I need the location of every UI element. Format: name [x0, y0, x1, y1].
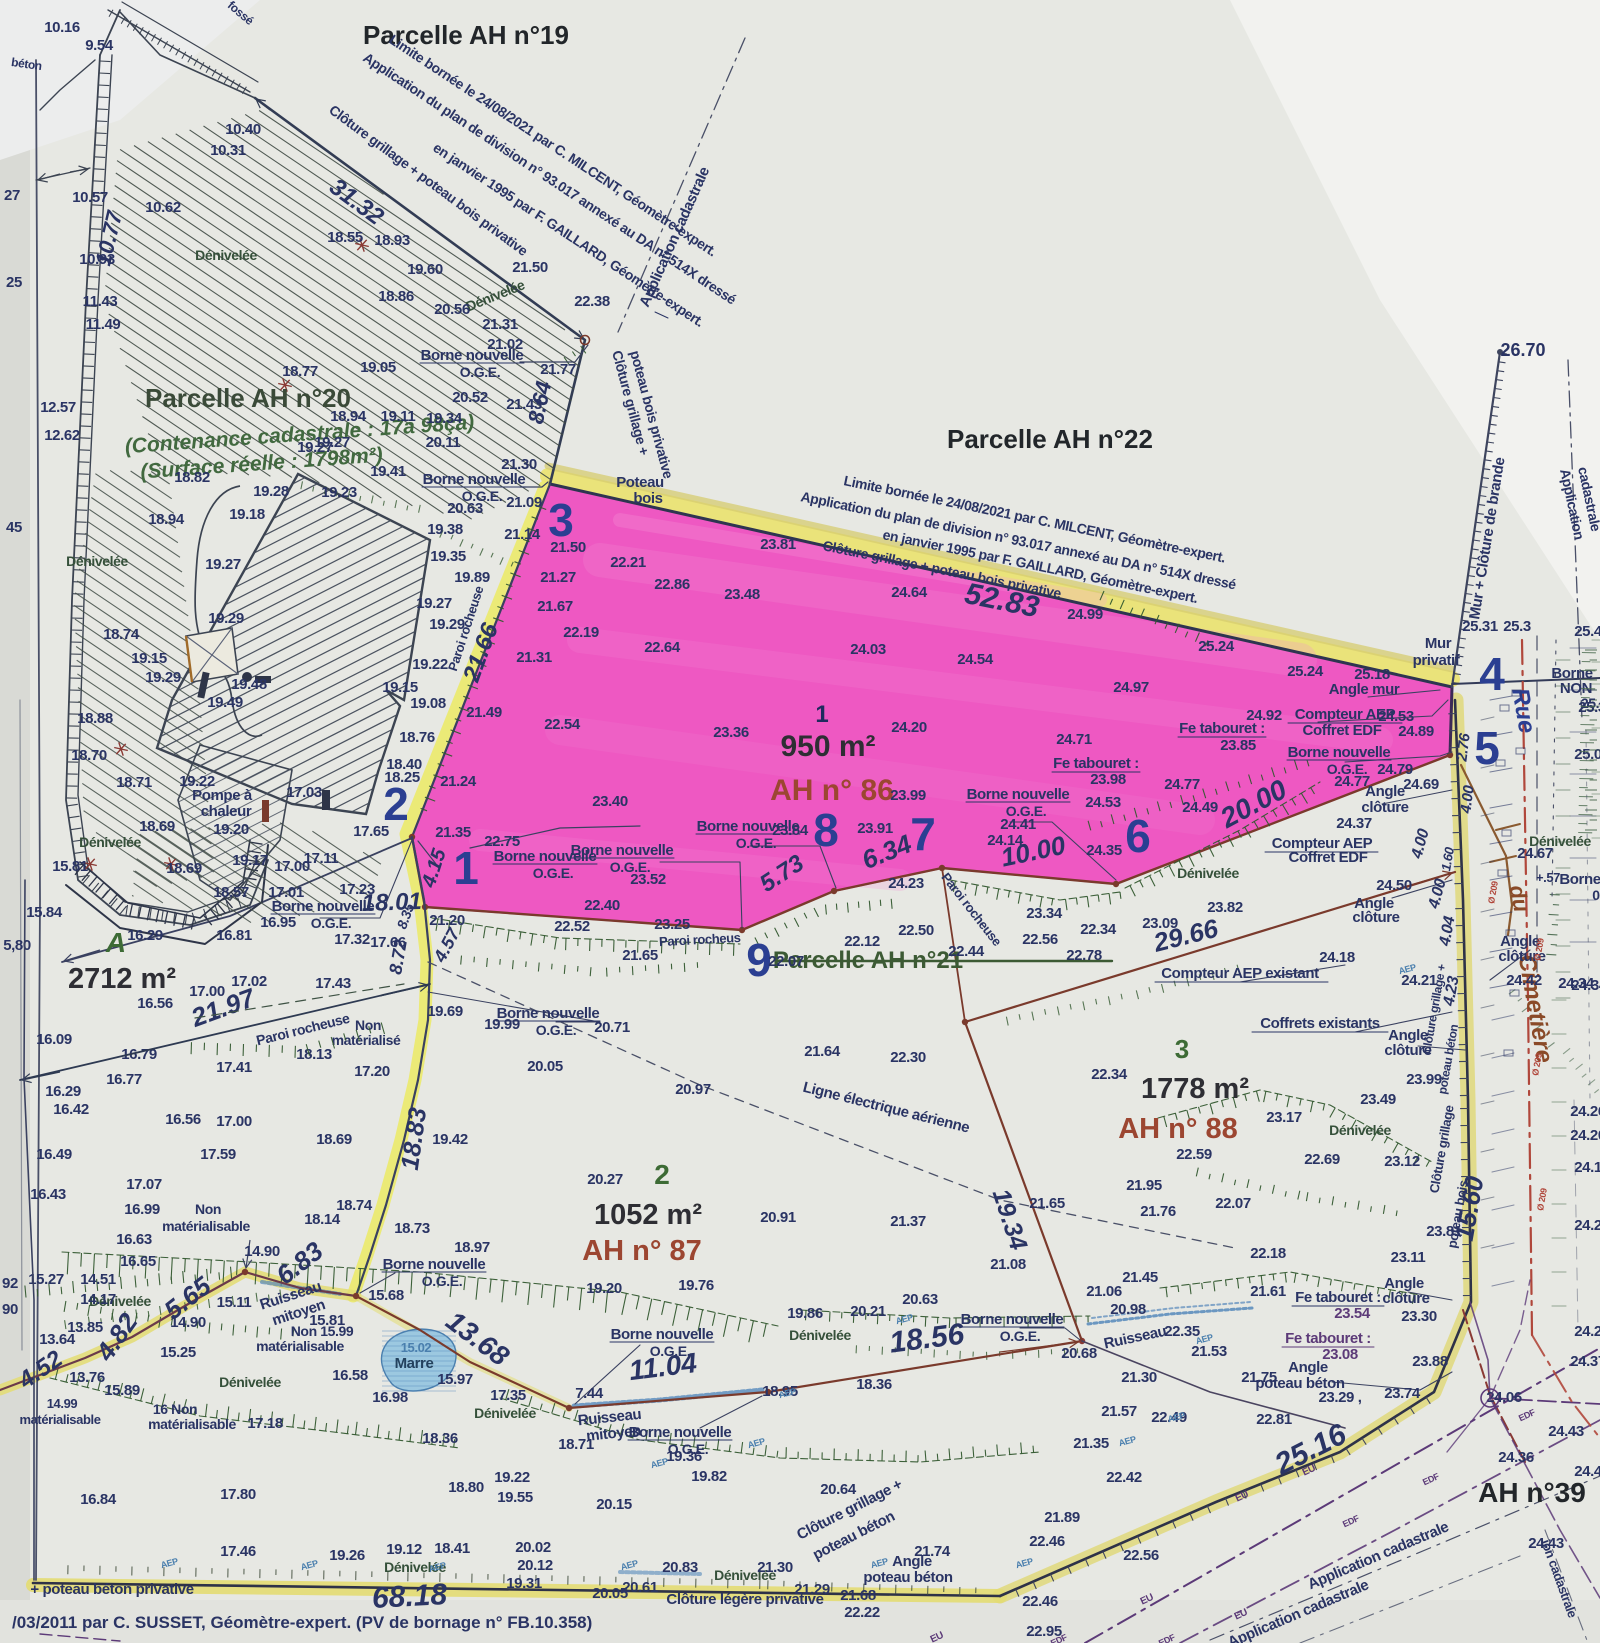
svg-text:19.27: 19.27: [297, 439, 333, 456]
svg-text:18.71: 18.71: [558, 1436, 594, 1453]
svg-text:24.43: 24.43: [1548, 1423, 1584, 1440]
svg-text:19.15: 19.15: [382, 679, 418, 696]
svg-text:22.30: 22.30: [890, 1049, 926, 1066]
svg-text:23.81: 23.81: [760, 536, 796, 553]
svg-text:27: 27: [4, 187, 20, 204]
svg-text:21.67: 21.67: [537, 598, 573, 615]
svg-text:20.02: 20.02: [515, 1539, 551, 1556]
svg-text:19.28: 19.28: [253, 483, 289, 500]
svg-text:24.24: 24.24: [1574, 1217, 1600, 1234]
svg-text:O.G.E.: O.G.E.: [422, 1273, 462, 1289]
svg-text:matérialisable: matérialisable: [162, 1218, 250, 1234]
svg-text:21.35: 21.35: [435, 824, 471, 841]
svg-text:Borne: Borne: [1559, 871, 1600, 888]
svg-text:18.86: 18.86: [378, 288, 414, 305]
svg-text:18.74: 18.74: [103, 626, 140, 643]
svg-text:clôture: clôture: [1382, 1290, 1429, 1307]
svg-text:Dénivelée: Dénivelée: [789, 1327, 851, 1343]
svg-text:25.4: 25.4: [1574, 623, 1600, 640]
svg-text:24.41: 24.41: [1000, 816, 1036, 833]
svg-text:950 m²: 950 m²: [780, 730, 875, 763]
svg-text:21.75: 21.75: [1241, 1369, 1277, 1386]
svg-text:15.25: 15.25: [160, 1344, 196, 1361]
svg-text:19.42: 19.42: [432, 1131, 468, 1148]
svg-text:22.18: 22.18: [1250, 1245, 1286, 1262]
svg-text:21.29: 21.29: [794, 1581, 830, 1598]
svg-text:O.G.E.: O.G.E.: [650, 1343, 690, 1359]
svg-text:15.02: 15.02: [401, 1340, 432, 1355]
svg-text:Borne nouvelle: Borne nouvelle: [961, 1311, 1064, 1328]
svg-text:13.64: 13.64: [39, 1331, 76, 1348]
svg-text:24.92: 24.92: [1246, 707, 1282, 724]
svg-text:20.05: 20.05: [527, 1058, 563, 1075]
svg-text:17.20: 17.20: [354, 1063, 390, 1080]
svg-text:24.89: 24.89: [1398, 723, 1434, 740]
svg-text:19.31: 19.31: [506, 1575, 542, 1592]
svg-text:16.09: 16.09: [36, 1031, 72, 1048]
svg-text:Dénivelée: Dénivelée: [474, 1405, 536, 1421]
svg-text:22.44: 22.44: [948, 943, 985, 960]
svg-text:1052 m²: 1052 m²: [594, 1199, 702, 1231]
svg-text:20.56: 20.56: [434, 301, 470, 318]
svg-text:18.93: 18.93: [374, 232, 410, 249]
svg-text:21.95: 21.95: [1126, 1177, 1162, 1194]
svg-text:24.37: 24.37: [1336, 815, 1372, 832]
svg-text:24.18: 24.18: [1319, 949, 1355, 966]
svg-text:Borne nouvelle: Borne nouvelle: [1288, 744, 1391, 761]
svg-text:21.45: 21.45: [1122, 1269, 1158, 1286]
svg-text:17.35: 17.35: [490, 1387, 526, 1404]
svg-text:matérialisable: matérialisable: [256, 1338, 344, 1354]
svg-text:11.43: 11.43: [83, 293, 118, 310]
svg-text:Dénivelée: Dénivelée: [1177, 865, 1239, 881]
svg-text:22.64: 22.64: [644, 639, 681, 656]
svg-text:22.75: 22.75: [484, 833, 520, 850]
svg-text:21.35: 21.35: [1073, 1435, 1109, 1452]
svg-text:19.05: 19.05: [360, 359, 396, 376]
svg-text:Borne nouvelle: Borne nouvelle: [383, 1256, 486, 1273]
svg-text:22.34: 22.34: [1091, 1066, 1128, 1083]
svg-text:16.29: 16.29: [45, 1083, 81, 1100]
svg-text:17.46: 17.46: [220, 1543, 256, 1560]
svg-text:4.00: 4.00: [1457, 784, 1477, 816]
svg-text:22.42: 22.42: [1106, 1469, 1142, 1486]
svg-text:7.44: 7.44: [575, 1385, 604, 1402]
svg-text:Fe tabouret :: Fe tabouret :: [1285, 1330, 1371, 1347]
svg-text:19.22: 19.22: [179, 773, 215, 790]
svg-text:20.83: 20.83: [662, 1559, 698, 1576]
svg-text:23.74: 23.74: [1384, 1385, 1421, 1402]
svg-text:24.36: 24.36: [1498, 1449, 1534, 1466]
svg-text:18.74: 18.74: [336, 1197, 373, 1214]
svg-text:Dénivelée: Dénivelée: [66, 553, 128, 569]
svg-text:20.21: 20.21: [850, 1303, 886, 1320]
svg-text:A: A: [105, 927, 126, 958]
svg-text:14.51: 14.51: [80, 1271, 116, 1288]
svg-text:22.19: 22.19: [563, 624, 599, 641]
svg-text:23.29 ,: 23.29 ,: [1318, 1389, 1361, 1406]
svg-text:22.40: 22.40: [584, 897, 620, 914]
svg-text:Dénivelée: Dénivelée: [1329, 1122, 1391, 1138]
svg-text:1778 m²: 1778 m²: [1141, 1073, 1249, 1105]
svg-text:16.56: 16.56: [137, 995, 173, 1012]
svg-text:22.56: 22.56: [1123, 1547, 1159, 1564]
svg-text:23.91: 23.91: [857, 820, 893, 837]
svg-text:chaleur: chaleur: [201, 803, 252, 820]
svg-text:6: 6: [1125, 810, 1151, 862]
svg-text:21.50: 21.50: [550, 539, 586, 556]
svg-text:17.00: 17.00: [216, 1113, 252, 1130]
svg-text:25.3: 25.3: [1503, 618, 1531, 635]
svg-text:23.99: 23.99: [890, 787, 926, 804]
svg-text:24.06: 24.06: [1486, 1389, 1522, 1406]
svg-text:O.G.E.: O.G.E.: [536, 1022, 576, 1038]
svg-text:18.94: 18.94: [330, 408, 367, 425]
svg-text:18.77: 18.77: [282, 363, 318, 380]
svg-text:19.22: 19.22: [494, 1469, 530, 1486]
svg-text:2712 m²: 2712 m²: [68, 963, 176, 995]
svg-text:20.61: 20.61: [622, 1579, 658, 1596]
svg-text:24.77: 24.77: [1164, 776, 1200, 793]
svg-text:AH n° 87: AH n° 87: [582, 1235, 702, 1267]
svg-text:O.G.E.: O.G.E.: [1000, 1328, 1040, 1344]
svg-text:24.35: 24.35: [1086, 842, 1122, 859]
svg-text:24.67: 24.67: [1517, 845, 1553, 862]
svg-text:24.50: 24.50: [1376, 877, 1412, 894]
svg-text:Dénivelée: Dénivelée: [219, 1374, 281, 1390]
svg-text:22.07: 22.07: [1215, 1195, 1251, 1212]
svg-text:21.20: 21.20: [429, 912, 465, 929]
svg-text:O.G.E.: O.G.E.: [533, 865, 573, 881]
svg-text:11.49: 11.49: [86, 316, 121, 333]
svg-text:24.43: 24.43: [1528, 1535, 1564, 1552]
svg-text:22.12: 22.12: [844, 933, 880, 950]
svg-text:20.11: 20.11: [426, 434, 461, 451]
svg-text:18.36: 18.36: [856, 1376, 892, 1393]
svg-text:21.65: 21.65: [622, 947, 658, 964]
svg-text:18.57: 18.57: [213, 884, 249, 901]
svg-text:23.85: 23.85: [1220, 737, 1256, 754]
svg-text:18.94: 18.94: [148, 511, 185, 528]
svg-text:21.76: 21.76: [1140, 1203, 1176, 1220]
svg-text:8: 8: [813, 804, 839, 856]
svg-text:22.38: 22.38: [574, 293, 610, 310]
svg-text:17.32: 17.32: [334, 931, 370, 948]
svg-text:20.64: 20.64: [820, 1481, 857, 1498]
svg-text:19.82: 19.82: [691, 1468, 727, 1485]
svg-text:21.50: 21.50: [512, 259, 548, 276]
svg-text:21.14: 21.14: [504, 526, 541, 543]
svg-text:19.26: 19.26: [329, 1547, 365, 1564]
svg-text:20.52: 20.52: [452, 389, 488, 406]
svg-text:privatif: privatif: [1413, 652, 1461, 669]
svg-text:15.89: 15.89: [104, 1382, 140, 1399]
svg-text:19.08: 19.08: [410, 695, 446, 712]
svg-text:17.18: 17.18: [247, 1415, 283, 1432]
svg-text:21.31: 21.31: [482, 316, 518, 333]
svg-text:24.42: 24.42: [1506, 972, 1542, 989]
svg-text:10.93: 10.93: [79, 251, 115, 268]
svg-text:10.16: 10.16: [44, 19, 80, 36]
svg-text:18.36: 18.36: [422, 1430, 458, 1447]
svg-text:+.57: +.57: [1536, 870, 1560, 885]
svg-text:15.11: 15.11: [217, 1294, 252, 1311]
svg-text:23.34: 23.34: [1026, 905, 1063, 922]
svg-text:5,80: 5,80: [3, 937, 31, 954]
svg-text:19.27: 19.27: [205, 556, 241, 573]
svg-text:21.89: 21.89: [1044, 1509, 1080, 1526]
svg-text:25.24: 25.24: [1198, 638, 1235, 655]
svg-text:19.23: 19.23: [321, 484, 357, 501]
svg-text:poteau béton: poteau béton: [863, 1569, 953, 1586]
svg-text:21.37: 21.37: [890, 1213, 926, 1230]
svg-text:68.18: 68.18: [371, 1578, 448, 1615]
svg-text:matérialisable: matérialisable: [19, 1412, 100, 1427]
svg-text:Borne nouvelle: Borne nouvelle: [629, 1424, 732, 1441]
svg-text:19.60: 19.60: [407, 261, 443, 278]
svg-text:24.77: 24.77: [1334, 773, 1370, 790]
svg-text:20.12: 20.12: [517, 1557, 553, 1574]
svg-text:22.52: 22.52: [554, 918, 590, 935]
svg-text:21.09: 21.09: [506, 494, 542, 511]
svg-text:92: 92: [2, 1275, 18, 1292]
svg-text:17.59: 17.59: [200, 1146, 236, 1163]
svg-text:19.29: 19.29: [145, 669, 181, 686]
svg-text:15.84: 15.84: [26, 904, 63, 921]
svg-text:20.68: 20.68: [1061, 1345, 1097, 1362]
svg-text:18.25: 18.25: [384, 769, 420, 786]
svg-text:16.58: 16.58: [332, 1367, 368, 1384]
svg-text:15.68: 15.68: [368, 1287, 404, 1304]
svg-text:Non: Non: [195, 1201, 221, 1217]
svg-text:23.25: 23.25: [654, 916, 690, 933]
svg-text:21.30: 21.30: [501, 456, 537, 473]
svg-text:17.66: 17.66: [370, 934, 406, 951]
svg-text:21.57: 21.57: [1101, 1403, 1137, 1420]
svg-text:22.69: 22.69: [1304, 1151, 1340, 1168]
svg-text:23.48: 23.48: [724, 586, 760, 603]
svg-text:22.07: 22.07: [768, 953, 804, 970]
svg-text:21.30: 21.30: [1121, 1369, 1157, 1386]
svg-text:16.77: 16.77: [106, 1071, 142, 1088]
svg-text:23.82: 23.82: [1207, 899, 1243, 916]
svg-text:24.23: 24.23: [1574, 1323, 1600, 1340]
svg-text:23.49: 23.49: [1360, 1091, 1396, 1108]
svg-text:Borne nouvelle: Borne nouvelle: [611, 1326, 714, 1343]
svg-text:17.65: 17.65: [353, 823, 389, 840]
svg-text:Angle mur: Angle mur: [1329, 681, 1400, 698]
svg-text:21.65: 21.65: [1029, 1195, 1065, 1212]
svg-text:15.81: 15.81: [309, 1312, 345, 1329]
svg-text:17.80: 17.80: [220, 1486, 256, 1503]
svg-text:Poteau: Poteau: [616, 474, 664, 491]
svg-text:17.03: 17.03: [286, 784, 322, 801]
svg-text:18.97: 18.97: [454, 1239, 490, 1256]
svg-text:Borne nouvelle: Borne nouvelle: [967, 786, 1070, 803]
svg-text:16.95: 16.95: [260, 914, 296, 931]
svg-text:18.88: 18.88: [77, 710, 113, 727]
svg-text:14.17: 14.17: [80, 1291, 116, 1308]
svg-text:25: 25: [6, 274, 22, 291]
svg-text:24.23: 24.23: [888, 875, 924, 892]
svg-text:21.43: 21.43: [506, 396, 542, 413]
svg-text:19.27: 19.27: [416, 595, 452, 612]
svg-text:25.31: 25.31: [1462, 618, 1498, 635]
svg-text:20.63: 20.63: [447, 500, 483, 517]
svg-text:16.49: 16.49: [36, 1146, 72, 1163]
svg-text:19.69: 19.69: [427, 1003, 463, 1020]
svg-text:19.12: 19.12: [386, 1541, 422, 1558]
svg-text:19.86: 19.86: [787, 1305, 823, 1322]
svg-text:17.00: 17.00: [189, 983, 225, 1000]
svg-text:12.57: 12.57: [40, 399, 76, 416]
svg-text:24.54: 24.54: [957, 651, 994, 668]
svg-text:20.71: 20.71: [594, 1019, 630, 1036]
svg-text:21.08: 21.08: [990, 1256, 1026, 1273]
svg-text:18.71: 18.71: [116, 774, 152, 791]
svg-text:17.01: 17.01: [268, 884, 304, 901]
svg-text:22.54: 22.54: [544, 716, 581, 733]
svg-text:25.3: 25.3: [1578, 699, 1600, 716]
svg-text:22.59: 22.59: [1176, 1146, 1212, 1163]
svg-text:21.02: 21.02: [487, 336, 523, 353]
svg-text:23.81: 23.81: [1426, 1223, 1462, 1240]
svg-text:17.02: 17.02: [231, 973, 267, 990]
svg-text:17.41: 17.41: [216, 1059, 252, 1076]
svg-text:23.40: 23.40: [592, 793, 628, 810]
svg-text:21.49: 21.49: [466, 704, 502, 721]
svg-text:O.G.E.: O.G.E.: [460, 364, 500, 380]
svg-text:0: 0: [1592, 887, 1600, 903]
svg-text:18.76: 18.76: [399, 729, 435, 746]
svg-text:20.63: 20.63: [902, 1291, 938, 1308]
svg-text:bois: bois: [633, 490, 662, 507]
svg-text:24.14: 24.14: [1574, 1159, 1600, 1176]
svg-text:20.91: 20.91: [760, 1209, 796, 1226]
svg-text:19.29: 19.29: [429, 616, 465, 633]
svg-text:19.49: 19.49: [207, 694, 243, 711]
svg-text:/03/2011 par C. SUSSET, Géomèt: /03/2011 par C. SUSSET, Géomètre-expert.…: [12, 1613, 592, 1632]
svg-text:14.90: 14.90: [170, 1314, 206, 1331]
svg-text:24.03: 24.03: [850, 641, 886, 658]
svg-text:10.31: 10.31: [210, 142, 246, 159]
svg-text:22.50: 22.50: [898, 922, 934, 939]
svg-text:17.23: 17.23: [339, 881, 375, 898]
svg-text:19.15: 19.15: [131, 650, 167, 667]
svg-text:23.17: 23.17: [1266, 1109, 1302, 1126]
svg-text:16.81: 16.81: [216, 927, 252, 944]
svg-text:14.99: 14.99: [47, 1396, 78, 1411]
svg-text:23.54: 23.54: [1334, 1305, 1371, 1322]
svg-text:AH n° 88: AH n° 88: [1118, 1113, 1238, 1145]
svg-text:21.30: 21.30: [757, 1559, 793, 1576]
svg-text:21.61: 21.61: [1250, 1283, 1286, 1300]
svg-text:13.76: 13.76: [69, 1369, 105, 1386]
svg-text:24.71: 24.71: [1056, 731, 1092, 748]
svg-text:matérialisé: matérialisé: [332, 1032, 401, 1048]
svg-text:22.34: 22.34: [1080, 921, 1117, 938]
svg-text:24.97: 24.97: [1113, 679, 1149, 696]
svg-text:25.24: 25.24: [1287, 663, 1324, 680]
svg-text:24.4: 24.4: [1574, 1463, 1600, 1480]
svg-text:22.81: 22.81: [1256, 1411, 1292, 1428]
svg-text:10.62: 10.62: [145, 199, 181, 216]
svg-text:clôture: clôture: [1361, 799, 1408, 816]
svg-text:22.21: 22.21: [610, 554, 646, 571]
svg-text:24.14: 24.14: [987, 832, 1024, 849]
svg-text:20.15: 20.15: [596, 1496, 632, 1513]
svg-text:21.31: 21.31: [516, 649, 552, 666]
svg-text:Borne nouvelle: Borne nouvelle: [571, 842, 674, 859]
svg-text:Dénivelée: Dénivelée: [195, 247, 257, 263]
svg-text:9.54: 9.54: [85, 37, 114, 54]
svg-text:19.22: 19.22: [412, 656, 448, 673]
svg-text:21.24: 21.24: [440, 773, 477, 790]
svg-text:1: 1: [815, 701, 828, 728]
svg-text:21.27: 21.27: [540, 569, 576, 586]
svg-text:Marre: Marre: [395, 1355, 434, 1372]
svg-text:Borne nouvelle: Borne nouvelle: [423, 471, 526, 488]
svg-text:Parcelle AH n°20: Parcelle AH n°20: [145, 383, 351, 413]
svg-text:+ poteau béton privative: + poteau béton privative: [30, 1581, 193, 1598]
svg-text:2: 2: [654, 1159, 670, 1190]
svg-text:19.34: 19.34: [426, 410, 463, 427]
svg-text:18.80: 18.80: [448, 1479, 484, 1496]
svg-text:22.22: 22.22: [844, 1604, 880, 1621]
svg-text:19.41: 19.41: [370, 463, 406, 480]
svg-text:Mur: Mur: [1425, 635, 1452, 652]
svg-text:24.34: 24.34: [1571, 977, 1600, 994]
svg-text:16.98: 16.98: [372, 1389, 408, 1406]
svg-text:24.99: 24.99: [1067, 606, 1103, 623]
svg-text:23.98: 23.98: [1090, 771, 1126, 788]
svg-text:16.29: 16.29: [127, 927, 163, 944]
svg-text:17.43: 17.43: [315, 975, 351, 992]
svg-text:Compteur AEP existant: Compteur AEP existant: [1161, 965, 1319, 982]
svg-text:22.86: 22.86: [654, 576, 690, 593]
svg-text:19.76: 19.76: [678, 1277, 714, 1294]
svg-text:clôture: clôture: [1352, 909, 1399, 926]
svg-text:45: 45: [6, 519, 22, 536]
svg-text:23.88: 23.88: [1412, 1353, 1448, 1370]
svg-text:16.99: 16.99: [124, 1201, 160, 1218]
svg-text:20.27: 20.27: [587, 1171, 623, 1188]
svg-text:O.G.E.: O.G.E.: [736, 835, 776, 851]
svg-text:21.06: 21.06: [1086, 1283, 1122, 1300]
svg-text:24.49: 24.49: [1182, 799, 1218, 816]
svg-text:18.70: 18.70: [71, 747, 107, 764]
svg-text:matérialisable: matérialisable: [148, 1416, 236, 1432]
svg-text:16 Non: 16 Non: [153, 1401, 197, 1417]
svg-text:Fe tabouret :: Fe tabouret :: [1295, 1289, 1381, 1306]
svg-text:18.41: 18.41: [434, 1540, 470, 1557]
svg-text:19.38: 19.38: [427, 521, 463, 538]
svg-text:O.G.E.: O.G.E.: [311, 915, 351, 931]
svg-text:23.30: 23.30: [1401, 1308, 1437, 1325]
svg-text:23.11: 23.11: [1391, 1249, 1426, 1266]
svg-text:24.64: 24.64: [891, 584, 928, 601]
svg-text:24.53: 24.53: [1085, 794, 1121, 811]
svg-text:16.84: 16.84: [80, 1491, 117, 1508]
svg-text:23.84: 23.84: [772, 822, 809, 839]
svg-text:18.73: 18.73: [394, 1220, 430, 1237]
svg-text:17.11: 17.11: [304, 850, 339, 867]
svg-text:24.53: 24.53: [1378, 708, 1414, 725]
svg-text:18.13: 18.13: [296, 1046, 332, 1063]
svg-text:19.99: 19.99: [484, 1016, 520, 1033]
svg-text:24.69: 24.69: [1403, 776, 1439, 793]
svg-text:23.09: 23.09: [1142, 915, 1178, 932]
